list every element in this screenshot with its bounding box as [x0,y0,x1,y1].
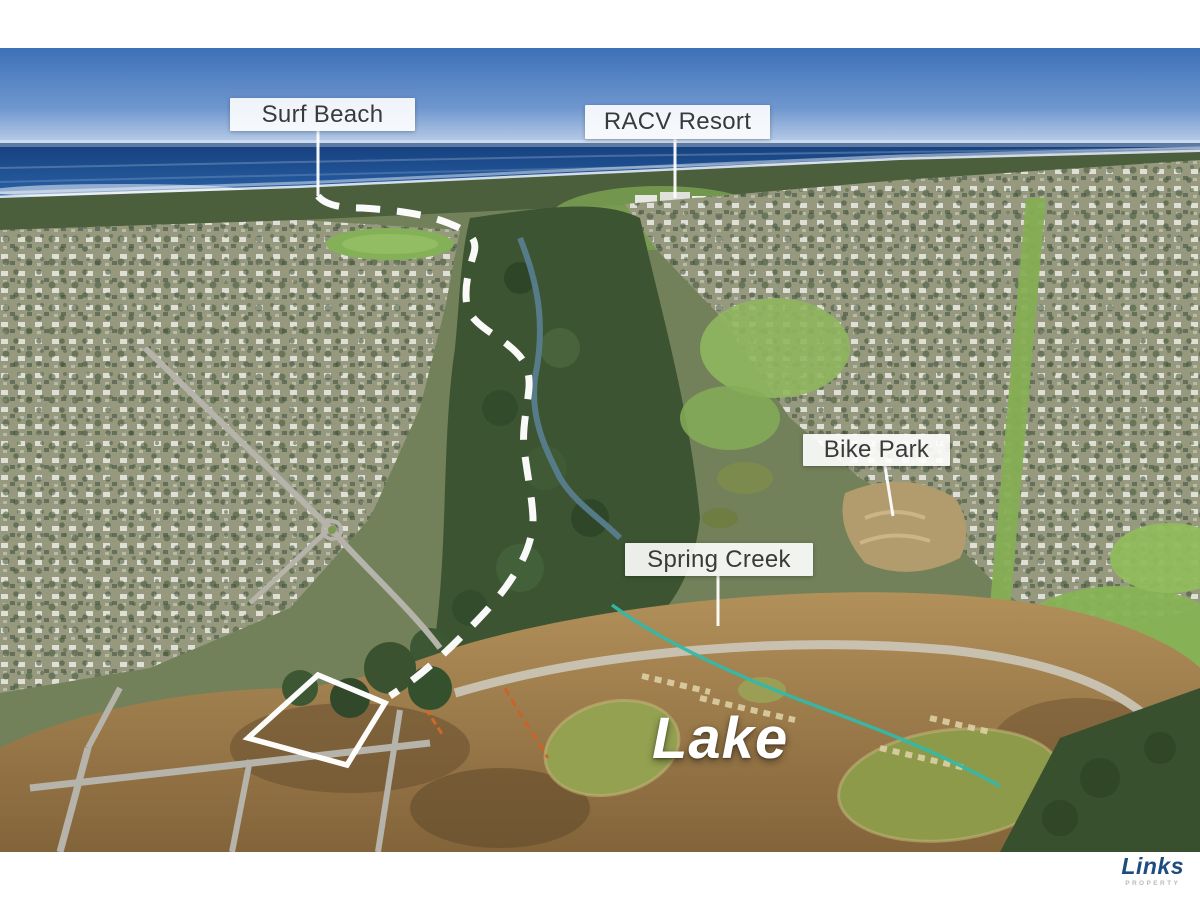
property-marketing-image: Surf Beach RACV Resort Bike Park Spring … [0,0,1200,900]
bike-park-label: Bike Park [803,434,950,466]
lake-label: Lake [652,710,788,768]
logo-tagline-text: PROPERTY [1121,881,1184,888]
spring-creek-label: Spring Creek [625,543,813,576]
aerial-photo-terrain [0,48,1200,852]
links-property-logo: Links PROPERTY [1121,855,1184,888]
logo-brand-text: Links [1121,853,1184,879]
aerial-photo: Surf Beach RACV Resort Bike Park Spring … [0,48,1200,852]
surf-beach-label: Surf Beach [230,98,415,131]
racv-resort-label: RACV Resort [585,105,770,139]
sports-oval [326,228,454,260]
